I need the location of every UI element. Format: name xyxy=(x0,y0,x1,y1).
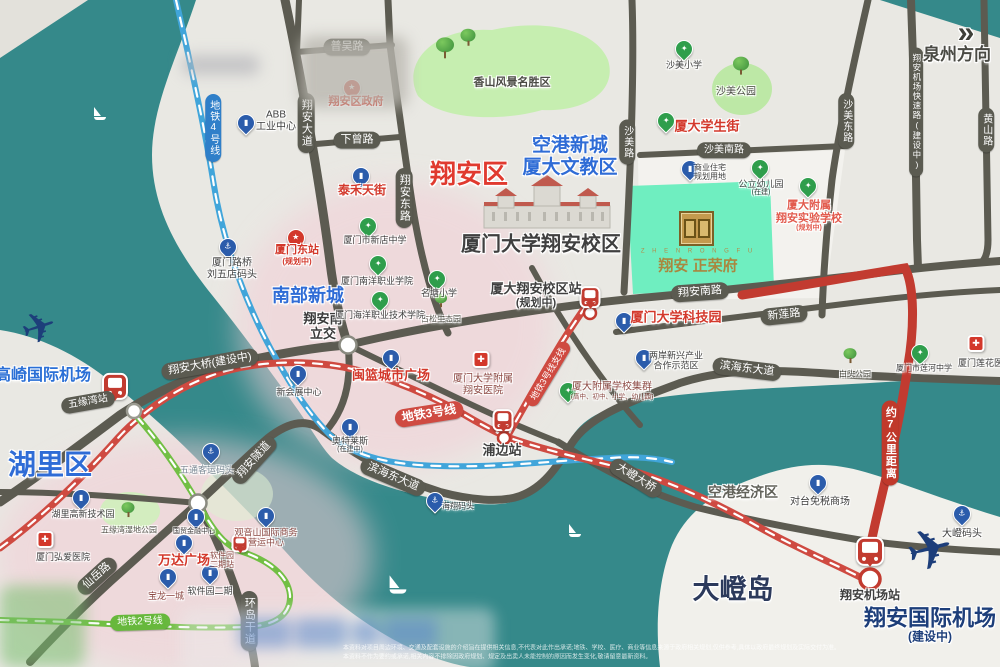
konggang-economic-label-text: 空港经济区 xyxy=(708,484,778,500)
dadeng-island-label: 大嶝岛 xyxy=(693,574,774,605)
xinlian-road-pill-text: 新莲路 xyxy=(767,307,801,323)
quanzhou-chevrons-icon-text: » xyxy=(958,16,975,51)
binhai-east-road-pill-1: 滨海东大道 xyxy=(358,456,428,498)
duty-free-pin: ▮ xyxy=(809,474,827,492)
baitou-park-tree-icon xyxy=(844,348,857,363)
guomao-financial-label-text: 国贸金融中心 xyxy=(173,528,215,536)
wetland-park-label: 五缘湾湿地公园 xyxy=(101,525,157,534)
hongai-hospital-label: 厦门弘爱医院 xyxy=(36,552,90,562)
wutong-ferry-pin: ⚓ xyxy=(202,443,220,461)
hongai-hospital-label-text: 厦门弘爱医院 xyxy=(36,552,90,562)
guanyinshan-business-label-text: 观音山国际商务 xyxy=(234,528,297,538)
shamei-park-tree-icon xyxy=(733,57,749,75)
xiangshan-tree-icon xyxy=(436,37,454,58)
area-map: 翔安区空港新城厦大文教区厦门大学翔安校区南部新城翔安南立交湖里区大嶝岛空港经济区… xyxy=(0,0,1000,667)
konggang-newtown-label: 空港新城厦大文教区 xyxy=(522,135,617,179)
airport-expressway-pill: 翔安机场快速路(建设中) xyxy=(909,48,923,177)
school-cluster-label: 厦大附属学校集群(高中、初中、小学、幼儿园) xyxy=(571,382,653,401)
liuwudian-label-text: 厦门路桥 xyxy=(207,258,257,270)
xinlian-road-pill: 新莲路 xyxy=(760,304,808,325)
shamei-primary-label-text: 沙美小学 xyxy=(666,60,702,70)
dadeng-bridge-pill: 大嶝大桥 xyxy=(607,456,665,501)
campus-station-label-text: (规划中) xyxy=(490,297,581,310)
xiangan-south-road-pill: 翔安南路 xyxy=(670,282,729,303)
xiangan-tunnel-pill-text: 翔安隧道 xyxy=(235,439,274,480)
xmu-tech-park-label: 厦门大学科技园 xyxy=(630,311,721,326)
gaoqi-plane-icon: ✈ xyxy=(21,307,56,349)
lianhua-hospital-label: 厦门莲花医院 xyxy=(958,358,1000,368)
campus-station-label-text: 厦大翔安校区站 xyxy=(490,282,581,297)
shamei-road-pill: 沙美路 xyxy=(619,120,635,165)
liuwudian-label: 厦门路桥刘五店码头 xyxy=(207,258,257,281)
disclaimer-line: 本资料不作为要约或承诺,相关内容不排除因政府规划、规定及出卖人未能控制的原因而发… xyxy=(343,653,840,662)
wetland-tree-icon xyxy=(122,502,135,517)
airport-expressway-pill-text: 翔安机场快速路(建设中) xyxy=(911,54,921,171)
student-street-label: 厦大学生街 xyxy=(674,120,739,135)
xiangan-south-road-pill-text: 翔安南路 xyxy=(678,284,723,300)
distance-label-text: 约7公里距离 xyxy=(884,407,897,480)
xiangan-bridge-pill: 翔安大桥(建设中) xyxy=(160,347,260,380)
wutong-ferry-label-text: 五通客运码头 xyxy=(180,465,234,475)
xmu-tech-park-label-text: 厦门大学科技园 xyxy=(630,311,721,326)
guanyinshan-business-pin: ▮ xyxy=(257,507,275,525)
kindergarten-label-text: (在建) xyxy=(738,189,783,197)
kindergarten-pin: ✦ xyxy=(751,159,769,177)
huangshan-road-pill: 黄山路 xyxy=(978,108,994,153)
xmu-campus-label-text: 厦门大学翔安校区 xyxy=(461,234,621,257)
gusong-eco-label: 古松生态园 xyxy=(421,314,461,323)
wanda-plaza-label: 万达广场 xyxy=(158,554,210,569)
binhai-east-road-pill-2-text: 滨海东大道 xyxy=(719,359,775,378)
commercial-land-label-text: 商业住宅 xyxy=(694,163,726,172)
xiamen-east-station-label-text: 厦门东站 xyxy=(275,244,319,257)
gaoqi-airport-label: 高崎国际机场 xyxy=(0,367,91,385)
xiangan-tunnel-pill: 翔安隧道 xyxy=(228,433,279,487)
minlan-plaza-pin: ▮ xyxy=(382,349,400,367)
software-park-label-text: 软件园二期 xyxy=(187,586,232,596)
outlets-label-text: 奥特莱斯 xyxy=(332,436,368,446)
metro4-line-pill: 地铁4号线 xyxy=(205,94,221,162)
haixiang-dock-label-text: 海翔码头 xyxy=(442,501,474,510)
mingtang-primary-label-text: 名塘小学 xyxy=(421,288,457,298)
outlets-pin: ▮ xyxy=(341,418,359,436)
watermark-blur-3 xyxy=(0,585,85,667)
metro4-line-pill-text: 地铁4号线 xyxy=(207,100,219,156)
binhai-east-road-pill-2: 滨海东大道 xyxy=(712,357,783,382)
xiazeng-road-pill: 下曾路 xyxy=(334,132,381,149)
distance-label: 约7公里距离 xyxy=(882,401,899,486)
shamei-east-road-pill: 沙美东路 xyxy=(838,93,854,149)
duty-free-label: 对台免税商场 xyxy=(790,496,850,508)
baitou-park-label: 白头公园 xyxy=(839,369,871,378)
watermark-blur-1 xyxy=(300,36,408,108)
huli-hitech-pin: ▮ xyxy=(72,489,90,507)
nanbu-newtown-label: 南部新城 xyxy=(272,286,344,307)
guanyinshan-business-label-text: 营运中心 xyxy=(234,538,297,548)
baolong-label-text: 宝龙一城 xyxy=(148,591,184,601)
software-station-label-text: 二期站 xyxy=(210,560,234,569)
huli-district-label: 湖里区 xyxy=(8,449,92,481)
huli-district-label-text: 湖里区 xyxy=(8,449,92,481)
metro3-line-pill: 地铁3号线 xyxy=(394,400,465,428)
taihe-label: 泰禾天街 xyxy=(338,184,386,198)
xmu-hospital-label-text: 翔安医院 xyxy=(453,385,513,397)
guanyinshan-business-label: 观音山国际商务营运中心 xyxy=(234,528,297,549)
shamei-south-road-pill-text: 沙美南路 xyxy=(704,144,744,156)
baolong-label: 宝龙一城 xyxy=(148,591,184,601)
xiangshan-park-label: 香山风景名胜区 xyxy=(474,77,551,90)
school-cluster-label-text: 厦大附属学校集群 xyxy=(571,382,653,394)
binhai-east-road-pill-1-text: 滨海东大道 xyxy=(365,460,421,493)
guomao-financial-pin: ▮ xyxy=(187,508,205,526)
commercial-land-label-text: 规划用地 xyxy=(694,172,726,181)
dadeng-dock-label: 大嶝码头 xyxy=(942,528,982,540)
xmu-hospital-label: 厦门大学附属翔安医院 xyxy=(453,374,513,397)
baolong-pin: ▮ xyxy=(159,568,177,586)
wanda-plaza-pin: ▮ xyxy=(175,534,193,552)
gusong-eco-label-text: 古松生态园 xyxy=(421,314,461,323)
hongai-hospital-pin-glyph: ✚ xyxy=(41,534,49,545)
xmu-campus-label: 厦门大学翔安校区 xyxy=(461,234,621,257)
minlan-plaza-label: 闽篮城市广场 xyxy=(352,369,430,384)
duty-free-label-text: 对台免税商场 xyxy=(790,496,850,508)
cross-strait-label-text: 合作示范区 xyxy=(649,361,703,371)
xmu-xiangan-school-label: 厦大附属翔安实验学校(规划中) xyxy=(776,199,842,232)
ocean-college-label-text: 厦门海洋职业技术学院 xyxy=(335,310,425,320)
zrf-en-label: Z H E N R O N G F U xyxy=(641,249,755,256)
disclaimer-line: 本资料对项目周边环境、交通及配套设施的介绍旨在提供相关信息,不代表对此作出承诺;… xyxy=(343,644,840,653)
software-station-label-text: 软件园 xyxy=(210,551,234,560)
convention-pin: ▮ xyxy=(289,365,307,383)
xindian-middle-label-text: 厦门市新店中学 xyxy=(343,235,406,245)
watermark-blur-2 xyxy=(182,55,260,75)
wetland-park-label-text: 五缘湾湿地公园 xyxy=(101,525,157,534)
konggang-economic-label: 空港经济区 xyxy=(708,484,778,500)
commercial-land-label: 商业住宅规划用地 xyxy=(694,163,726,181)
xiangan-district-label: 翔安区 xyxy=(430,160,508,190)
xindian-middle-pin: ✦ xyxy=(359,217,377,235)
software-park-label: 软件园二期 xyxy=(187,586,232,596)
abb-label-text: 工业中心 xyxy=(256,121,296,133)
xiangan-airport-label-text: (建设中) xyxy=(864,631,996,645)
shamei-primary-pin: ✦ xyxy=(675,40,693,58)
disclaimer-text: 本资料对项目周边环境、交通及配套设施的介绍旨在提供相关信息,不代表对此作出承诺;… xyxy=(343,644,840,662)
wanda-plaza-label-text: 万达广场 xyxy=(158,554,210,569)
xiangan-airport-label: 翔安国际机场(建设中) xyxy=(864,605,996,644)
nanyang-college-pin: ✦ xyxy=(369,255,387,273)
liuwudian-label-text: 刘五店码头 xyxy=(207,269,257,281)
shamei-park-label: 沙美公园 xyxy=(716,86,756,98)
xmu-hospital-pin-glyph: ✚ xyxy=(477,354,485,365)
campus-station-icon xyxy=(580,286,601,308)
software-station-label: 软件园二期站 xyxy=(210,551,234,569)
lianhua-hospital-pin-glyph: ✚ xyxy=(972,338,980,349)
quanzhou-chevrons-icon: » xyxy=(958,16,975,51)
xiangan-district-label-text: 翔安区 xyxy=(430,160,508,190)
xiangshan-tree2-icon xyxy=(461,29,476,46)
metro3-line-pill-text: 地铁3号线 xyxy=(401,403,457,425)
huli-hitech-label-text: 湖里高新技术园 xyxy=(51,509,114,519)
xiangan-bridge-pill-text: 翔安大桥(建设中) xyxy=(167,350,252,377)
zrf-en-label-text: Z H E N R O N G F U xyxy=(641,249,755,256)
xmu-xiangan-school-pin: ✦ xyxy=(799,177,817,195)
student-street-pin: ✦ xyxy=(657,112,675,130)
haixiang-dock-label: 海翔码头 xyxy=(442,501,474,510)
mingtang-primary-label: 名塘小学 xyxy=(421,288,457,298)
wuyuanwan-station-pill: 五缘湾站 xyxy=(60,390,116,415)
xmu-hospital-label-text: 厦门大学附属 xyxy=(453,374,513,386)
nanyang-college-label: 厦门南洋职业学院 xyxy=(341,276,413,286)
airport-station-icon xyxy=(856,537,884,566)
zrf-name-label-text: 翔安 正荣府 xyxy=(658,257,737,274)
kindergarten-label-text: 公立幼儿园 xyxy=(738,179,783,189)
liuwudian-dock-pin: ⚓ xyxy=(219,238,237,256)
shamei-park-label-text: 沙美公园 xyxy=(716,86,756,98)
huangshan-road-pill-text: 黄山路 xyxy=(980,114,992,147)
pubian-station-icon xyxy=(493,409,514,431)
xmu-xiangan-school-label-text: 厦大附属 xyxy=(776,199,842,212)
student-street-label-text: 厦大学生街 xyxy=(674,120,739,135)
xiangan-east-road-pill-text: 翔安东路 xyxy=(398,174,411,222)
lianhua-hospital-label-text: 厦门莲花医院 xyxy=(958,358,1000,368)
convention-label: 新会展中心 xyxy=(276,387,321,397)
mingtang-primary-pin: ✦ xyxy=(428,270,446,288)
boat-icon-2 xyxy=(569,524,581,537)
xmu-xiangan-school-label-text: 翔安实验学校 xyxy=(776,212,842,225)
xindian-middle-label: 厦门市新店中学 xyxy=(343,235,406,245)
taihe-label-text: 泰禾天街 xyxy=(338,184,386,198)
xianyue-road-pill-text: 仙岳路 xyxy=(81,560,114,591)
ocean-college-label: 厦门海洋职业技术学院 xyxy=(335,310,425,320)
pubian-station-label: 浦边站 xyxy=(482,444,521,459)
wutong-ferry-label: 五通客运码头 xyxy=(180,465,234,475)
ocean-college-pin: ✦ xyxy=(371,291,389,309)
lianhua-hospital-pin: ✚ xyxy=(968,335,985,352)
metro2-line-pill-text: 地铁2号线 xyxy=(117,615,163,628)
pubian-station-label-text: 浦边站 xyxy=(482,444,521,459)
konggang-newtown-label-text: 空港新城 xyxy=(522,135,617,157)
wuyuanwan-station-pill-text: 五缘湾站 xyxy=(67,393,108,411)
abb-pin: ▮ xyxy=(237,114,255,132)
dadeng-island-label-text: 大嶝岛 xyxy=(693,574,774,605)
cross-strait-label: 两岸新兴产业合作示范区 xyxy=(649,351,703,372)
xmu-xiangan-school-label-text: (规划中) xyxy=(776,225,842,233)
xmu-hospital-pin: ✚ xyxy=(473,351,490,368)
dadeng-dock-label-text: 大嶝码头 xyxy=(942,528,982,540)
interchange-label-text: 立交 xyxy=(303,327,342,342)
guomao-financial-label: 国贸金融中心 xyxy=(173,528,215,536)
abb-label-text: ABB xyxy=(256,110,296,122)
dadeng-bridge-pill-text: 大嶝大桥 xyxy=(614,461,658,495)
outlets-label: 奥特莱斯(在建中) xyxy=(332,436,368,454)
shamei-road-pill-text: 沙美路 xyxy=(621,126,633,159)
cross-strait-label-text: 两岸新兴产业 xyxy=(649,351,703,361)
shamei-east-road-pill-text: 沙美东路 xyxy=(840,99,852,143)
labels-layer: 翔安区空港新城厦大文教区厦门大学翔安校区南部新城翔安南立交湖里区大嶝岛空港经济区… xyxy=(0,0,1000,667)
metro2-line-pill: 地铁2号线 xyxy=(110,613,170,631)
outlets-label-text: (在建中) xyxy=(332,446,368,454)
baitou-park-label-text: 白头公园 xyxy=(839,369,871,378)
boat-icon-3 xyxy=(392,578,404,591)
school-cluster-label-text: (高中、初中、小学、幼儿园) xyxy=(571,393,653,400)
zhenrong-logo-icon xyxy=(679,211,714,246)
campus-station-label: 厦大翔安校区站(规划中) xyxy=(490,282,581,310)
xiangshan-park-label-text: 香山风景名胜区 xyxy=(474,77,551,90)
xiangan-east-road-pill: 翔安东路 xyxy=(396,168,413,228)
xiazeng-road-pill-text: 下曾路 xyxy=(341,134,374,147)
hongai-hospital-pin: ✚ xyxy=(37,531,54,548)
nanyang-college-label-text: 厦门南洋职业学院 xyxy=(341,276,413,286)
minlan-plaza-label-text: 闽篮城市广场 xyxy=(352,369,430,384)
airport-station-label: 翔安机场站 xyxy=(840,589,900,603)
lianhe-middle-pin: ✦ xyxy=(911,344,929,362)
xiamen-east-station-label-text: (规划中) xyxy=(275,257,319,266)
xiangan-airport-label-text: 翔安国际机场 xyxy=(864,605,996,630)
boat-icon-1 xyxy=(94,107,106,120)
lianhe-middle-label: 厦门市莲河中学 xyxy=(896,363,952,372)
airport-station-label-text: 翔安机场站 xyxy=(840,589,900,603)
convention-label-text: 新会展中心 xyxy=(276,387,321,397)
huli-hitech-label: 湖里高新技术园 xyxy=(51,509,114,519)
kindergarten-label: 公立幼儿园(在建) xyxy=(738,179,783,197)
gaoqi-airport-label-text: 高崎国际机场 xyxy=(0,367,91,385)
zrf-name-label: 翔安 正荣府 xyxy=(658,257,737,274)
shamei-south-road-pill: 沙美南路 xyxy=(697,142,751,158)
nanbu-newtown-label-text: 南部新城 xyxy=(272,286,344,307)
konggang-newtown-label-text: 厦大文教区 xyxy=(522,157,617,179)
lianhe-middle-label-text: 厦门市莲河中学 xyxy=(896,363,952,372)
abb-label: ABB工业中心 xyxy=(256,110,296,133)
shamei-primary-label: 沙美小学 xyxy=(666,60,702,70)
dadeng-dock-pin: ⚓ xyxy=(953,505,971,523)
xiamen-east-station-label: 厦门东站(规划中) xyxy=(275,244,319,266)
